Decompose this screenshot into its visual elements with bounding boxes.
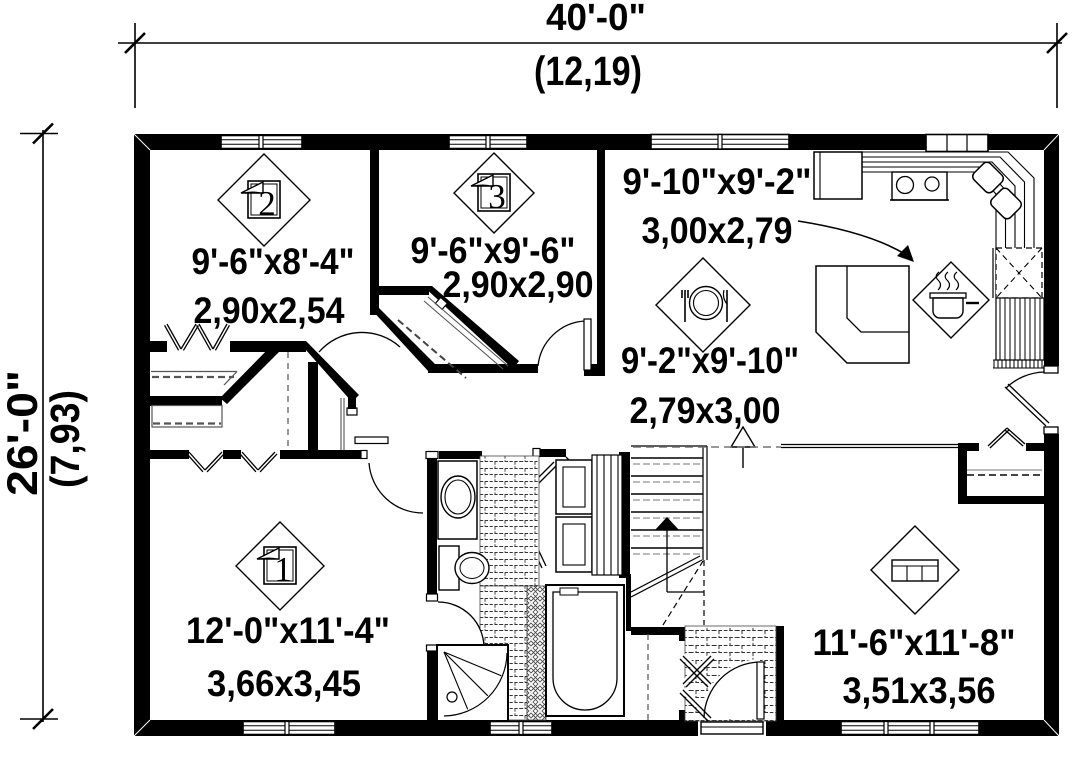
- svg-text:3,00x2,79: 3,00x2,79: [642, 210, 793, 251]
- svg-text:12'-0"x11'-4": 12'-0"x11'-4": [186, 610, 390, 651]
- svg-text:3,66x3,45: 3,66x3,45: [207, 663, 361, 704]
- svg-text:(7,93): (7,93): [42, 390, 88, 488]
- svg-text:3: 3: [488, 177, 506, 216]
- svg-text:40'-0": 40'-0": [546, 0, 646, 39]
- svg-text:3,51x3,56: 3,51x3,56: [843, 670, 996, 711]
- svg-text:2,90x2,54: 2,90x2,54: [194, 290, 345, 331]
- svg-text:2: 2: [258, 184, 276, 223]
- svg-text:2,79x3,00: 2,79x3,00: [630, 390, 781, 431]
- svg-text:9'-6"x8'-4": 9'-6"x8'-4": [192, 241, 355, 282]
- svg-text:11'-6"x11'-8": 11'-6"x11'-8": [813, 622, 1016, 663]
- svg-text:2,90x2,90: 2,90x2,90: [443, 264, 594, 305]
- svg-text:26'-0": 26'-0": [0, 370, 47, 496]
- svg-text:9'-10"x9'-2": 9'-10"x9'-2": [623, 161, 812, 202]
- svg-text:(12,19): (12,19): [534, 48, 642, 94]
- svg-text:9'-2"x9'-10": 9'-2"x9'-10": [621, 340, 799, 381]
- svg-text:1: 1: [274, 550, 292, 589]
